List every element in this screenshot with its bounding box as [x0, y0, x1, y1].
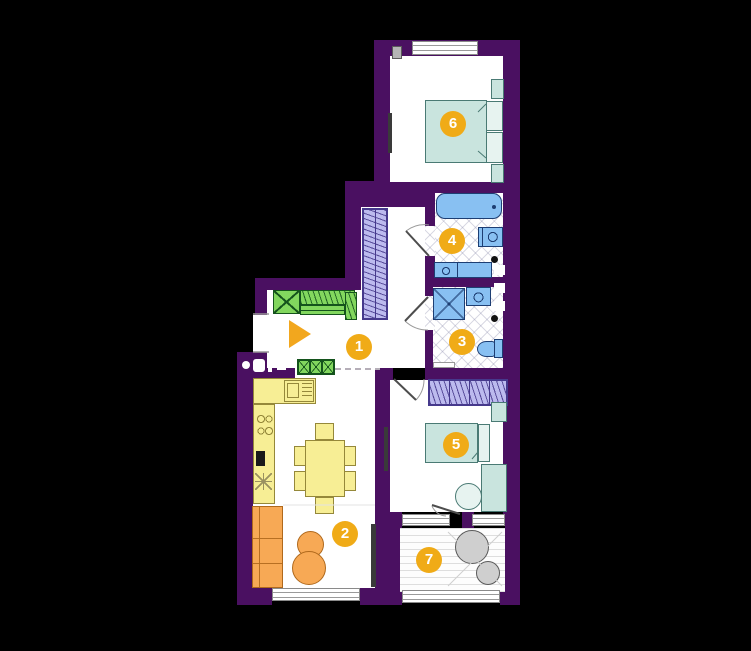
window-living-room — [272, 588, 360, 601]
floor-plan: 1 2 3 4 5 6 7 — [0, 0, 751, 651]
bathtub-icon — [436, 193, 502, 219]
desk-chair-icon — [455, 483, 482, 510]
balcony-chair-icon — [455, 530, 489, 564]
x-pattern-cell — [310, 360, 322, 374]
riser-pipe-icon — [491, 256, 498, 263]
pillow-icon — [486, 101, 503, 131]
meter-box-icon — [253, 359, 265, 372]
door-opening-bathroom4 — [425, 226, 435, 256]
room-badge-balcony: 7 — [416, 547, 442, 573]
window-bedroom6 — [412, 41, 478, 55]
faucet-icon — [492, 205, 496, 209]
sink-icon — [466, 287, 491, 306]
entry-door-opening — [253, 315, 269, 352]
x-pattern-cell — [322, 360, 334, 374]
vanity-sink-icon — [434, 262, 492, 278]
kitchen-shelf-icon — [297, 359, 335, 375]
room-badge-bedroom6: 6 — [440, 111, 466, 137]
window-balcony-top-right — [472, 514, 505, 526]
boiler-icon — [242, 361, 250, 369]
toilet-tank-icon — [494, 339, 503, 358]
washing-machine-icon — [478, 227, 503, 247]
desk-icon — [481, 464, 507, 512]
room-badge-kitchen-living: 2 — [332, 521, 358, 547]
window-balcony-bottom — [402, 590, 500, 603]
oven-icon — [256, 451, 265, 466]
shaft-vent-icon — [494, 283, 505, 293]
sofa-icon — [252, 506, 283, 588]
wall-bathroom4-left-upper — [425, 181, 435, 226]
kitchen-sink-basin-icon — [287, 383, 299, 398]
wall-hallway-top — [255, 278, 361, 290]
nightstand-icon — [491, 79, 504, 99]
wall-living-bedroom5-divider — [375, 368, 390, 605]
switch-icon — [268, 363, 272, 372]
wall-shower3-left-upper — [425, 288, 433, 296]
wall-bathroom4-shower3-divider — [425, 277, 503, 287]
shaft-vent-icon — [494, 265, 505, 275]
wall-kitchen-left — [237, 355, 253, 605]
wall-corridor-left — [345, 181, 361, 289]
entry-arrow-icon — [289, 320, 311, 348]
wall-balcony-left — [390, 510, 400, 605]
room-badge-hallway: 1 — [346, 334, 372, 360]
radiator-icon — [388, 113, 392, 153]
nightstand-icon — [491, 402, 507, 422]
balcony-chair-icon — [476, 561, 500, 585]
radiator-icon — [384, 427, 388, 471]
window-bedroom5-balcony — [402, 514, 450, 526]
room-badge-bedroom5: 5 — [443, 432, 469, 458]
wall-hallway-left-upper — [255, 278, 267, 315]
bath-mat-icon — [433, 362, 455, 368]
shoe-cabinet-icon — [273, 290, 300, 314]
chair-icon — [315, 423, 334, 440]
shower-icon — [433, 288, 465, 320]
pillow-icon — [478, 424, 490, 462]
nightstand-icon — [491, 164, 504, 183]
wall-bedroom5-top-left — [380, 368, 393, 380]
armchair-icon — [292, 551, 326, 585]
hallway-cabinet-icon — [345, 292, 357, 320]
wardrobe-icon — [362, 208, 388, 320]
panel-icon — [277, 361, 286, 370]
riser-pipe-icon — [491, 315, 498, 322]
x-pattern-cell — [298, 360, 310, 374]
chair-icon — [344, 471, 356, 491]
wall-balcony-bottom-stub — [500, 590, 520, 605]
chair-icon — [344, 446, 356, 466]
drainer-icon — [302, 383, 312, 398]
shaft-vent-icon — [494, 301, 505, 311]
hallway-shelf-icon — [300, 305, 345, 315]
room-badge-shower-room: 3 — [449, 329, 475, 355]
tv-icon — [371, 524, 376, 587]
room-badge-bathroom: 4 — [439, 228, 465, 254]
light-symbol-icon — [255, 473, 272, 490]
pillow-icon — [486, 132, 503, 163]
duct-icon — [392, 46, 402, 59]
chair-icon — [315, 497, 334, 514]
wall-living-bottom-stub — [237, 585, 272, 605]
dining-table-icon — [305, 440, 345, 497]
stove-icon — [255, 412, 274, 438]
wall-bedroom6-right — [503, 40, 520, 196]
